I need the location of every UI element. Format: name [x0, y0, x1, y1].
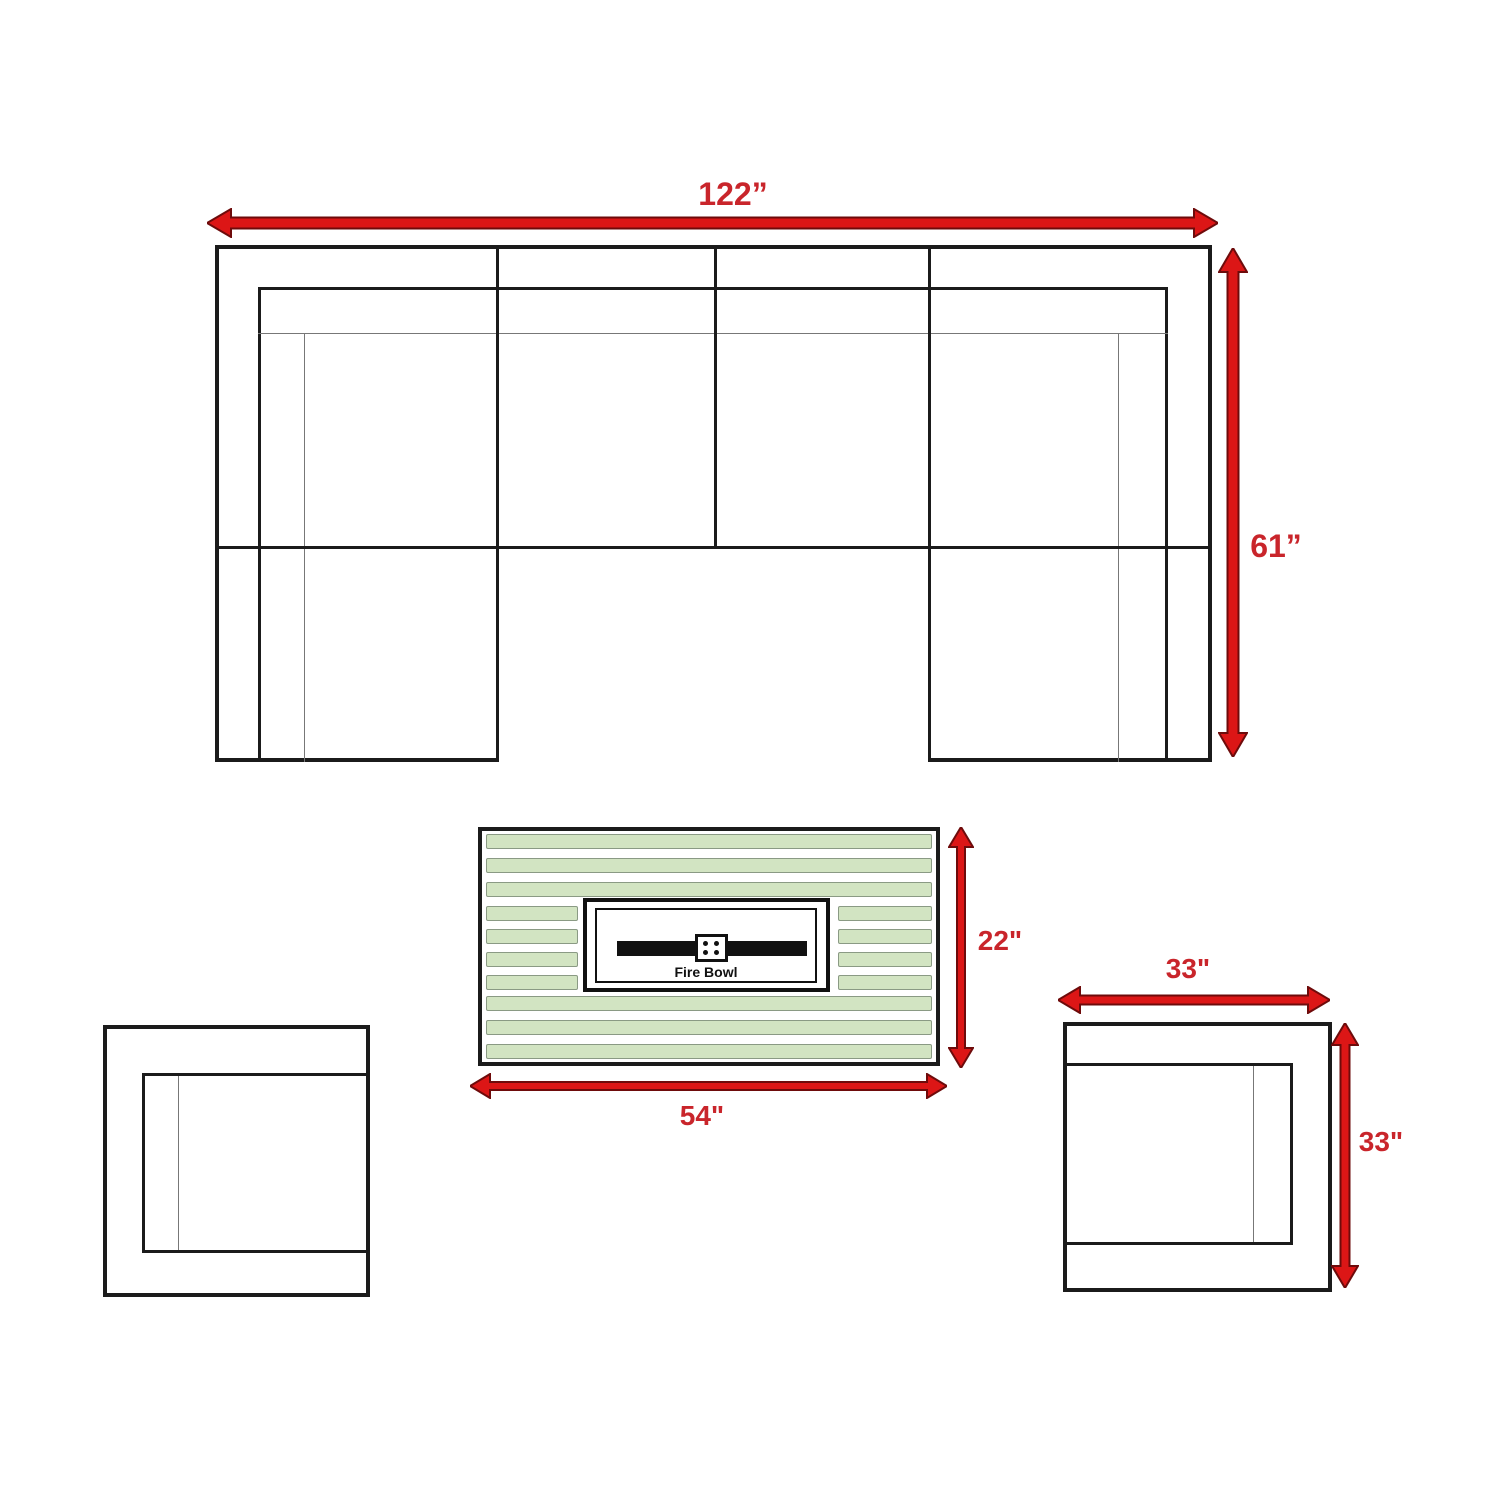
arrow-shape — [1058, 987, 1330, 1013]
chair-cushion-line — [1253, 1066, 1254, 1242]
chair-width-dimension-arrow — [1058, 986, 1330, 1014]
chair-depth-dimension-arrow — [1331, 1023, 1359, 1288]
chair-depth-label: 33" — [1359, 1128, 1403, 1156]
chair-width-label: 33" — [1166, 955, 1210, 983]
club-chair-right-topview: 33" 33" — [0, 0, 1500, 1500]
chair-seat-frame — [1063, 1063, 1293, 1245]
furniture-dimension-diagram: 122” 61” Fire B — [0, 0, 1500, 1500]
arrow-shape — [1332, 1023, 1358, 1288]
